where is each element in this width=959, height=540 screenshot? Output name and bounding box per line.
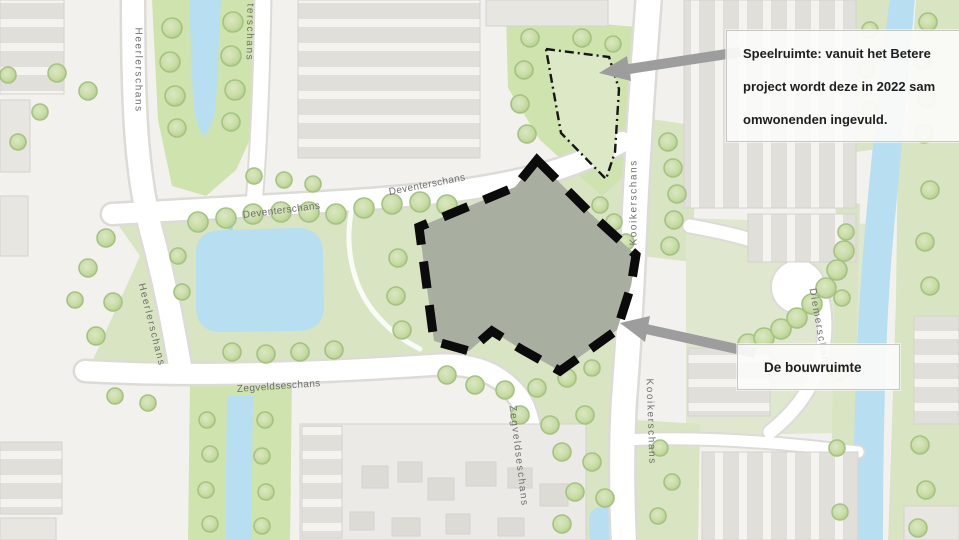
annotation-speelruimte-line2: project wordt deze in 2022 sam: [743, 70, 959, 103]
annotation-speelruimte-line1: Speelruimte: vanuit het Betere: [743, 37, 959, 70]
annotation-bouwruimte: De bouwruimte: [737, 344, 900, 390]
annotation-speelruimte: Speelruimte: vanuit het Betere project w…: [726, 30, 959, 142]
annotation-speelruimte-line3: omwonenden ingevuld.: [743, 103, 959, 136]
arrow-to-play-area: [599, 52, 740, 81]
arrow-to-building-site: [620, 316, 755, 353]
pointer-arrow-icon: [599, 56, 631, 81]
annotation-bouwruimte-label: De bouwruimte: [764, 360, 862, 375]
map-figure: Heerlerschans terschans Deventerschans D…: [0, 0, 959, 540]
pointer-arrow-icon: [620, 316, 650, 342]
